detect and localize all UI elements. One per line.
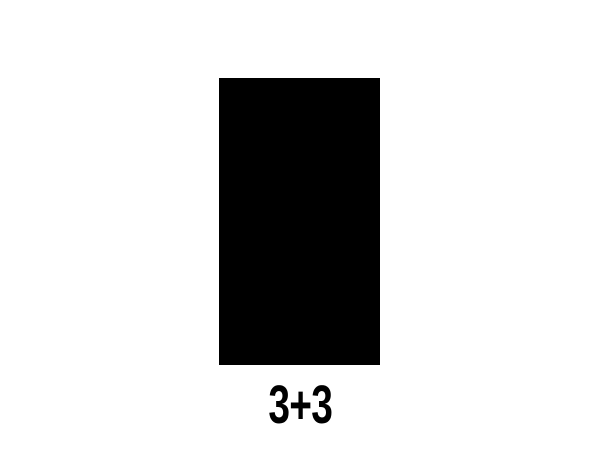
flashcard-canvas: 3+3 <box>0 0 600 450</box>
expression-container: 3+3 <box>0 381 600 429</box>
black-rectangle <box>219 78 380 365</box>
expression-label: 3+3 <box>268 378 332 432</box>
